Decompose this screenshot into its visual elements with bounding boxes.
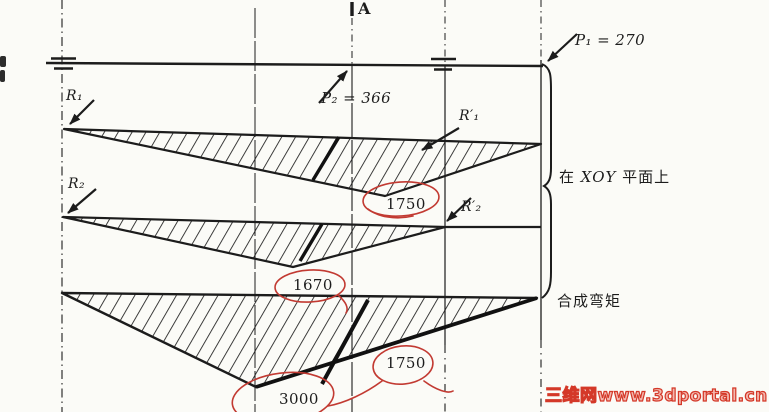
moment-diagram-canvas: [0, 0, 769, 412]
scan-artifacts: [0, 56, 6, 82]
plane-annotation-suffix: 平面上: [622, 168, 670, 186]
red-circle-1750-bottom-tail-right: [424, 381, 453, 392]
arrow-p1: [548, 34, 577, 61]
plane-annotation-axes: XOY: [575, 168, 622, 186]
resultant-annotation: 合成弯矩: [557, 293, 621, 310]
plane-annotation: 在 XOY 平面上: [559, 169, 670, 186]
moment-value-1750-top: 1750: [386, 196, 426, 213]
force-p1-label: P₁ = 270: [575, 32, 645, 49]
reaction-r1-prime-label: R′₁: [459, 109, 480, 124]
reaction-r2-label: R₂: [68, 177, 85, 192]
moment-diagram-1: [64, 129, 541, 196]
scanned-moment-diagram-page: A P₁ = 270 P₂ = 366 R₁ R₂ R′₁ R′₂ 1750 1…: [0, 0, 769, 412]
moment-triangle-2: [63, 217, 445, 267]
grouping-brace: [542, 64, 551, 298]
arrow-r2: [68, 189, 96, 213]
moment-triangle-1: [64, 129, 541, 196]
moment-diagram-2: [63, 217, 541, 267]
force-p2-label: P₂ = 366: [321, 90, 391, 107]
beam-top-line: [46, 63, 543, 66]
moment-value-1670: 1670: [293, 277, 333, 294]
point-a-label: A: [358, 0, 371, 18]
reaction-r1-label: R₁: [66, 89, 83, 104]
moment-value-3000: 3000: [279, 391, 319, 408]
moment-value-1750-bottom: 1750: [386, 355, 426, 372]
plane-annotation-prefix: 在: [559, 168, 575, 186]
site-watermark: 三维网www.3dportal.cn: [545, 387, 768, 406]
reaction-r2-prime-label: R′₂: [461, 200, 482, 215]
force-arrows: [68, 34, 577, 221]
red-circle-1750-bottom-tail-left: [328, 381, 382, 406]
